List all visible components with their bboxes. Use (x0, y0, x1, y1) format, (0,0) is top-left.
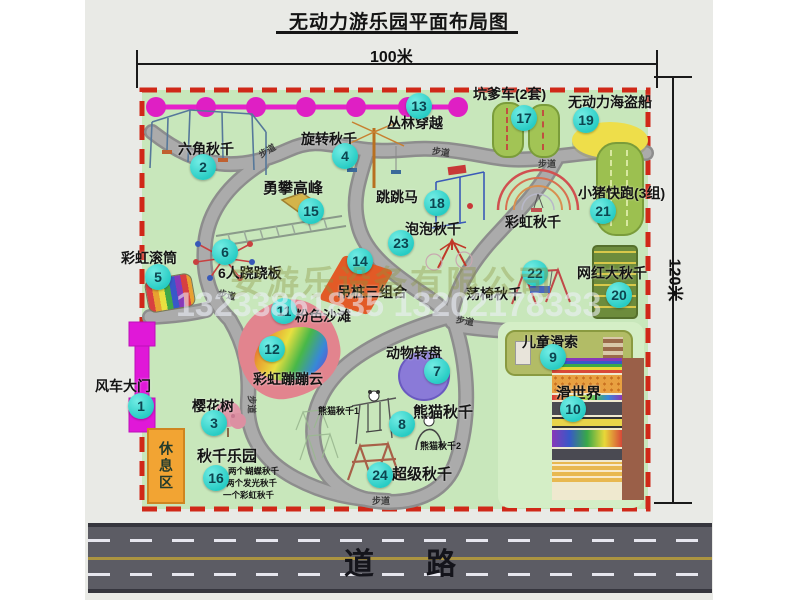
attraction-label-5: 彩虹滚筒 (121, 248, 177, 268)
attraction-badge-4: 4 (332, 143, 358, 169)
attraction-label-20: 网红大秋千 (577, 263, 647, 283)
attraction-badge-15: 15 (298, 198, 324, 224)
attraction-label-23: 泡泡秋千 (405, 219, 461, 239)
attraction-badge-9: 9 (540, 344, 566, 370)
attraction-badge-24: 24 (367, 462, 393, 488)
slide-world-tower (622, 358, 644, 500)
attraction-label-24: 超级秋千 (392, 463, 452, 484)
attraction-badge-8: 8 (389, 411, 415, 437)
attraction-label-8: 熊猫秋千 (413, 401, 473, 422)
swing-park-item-1: 两个蝴蝶秋千 (228, 465, 279, 477)
panda-swing-2-label: 熊猫秋千2 (420, 439, 461, 452)
park-layout-screenshot: 无动力游乐园平面布局图 100米 120米 (0, 0, 800, 600)
attraction-badge-23: 23 (388, 230, 414, 256)
swing-park-item-3: 一个彩虹秋千 (223, 489, 274, 501)
panda-swing-1-label: 熊猫秋千1 (318, 404, 359, 417)
attraction-label-15: 勇攀高峰 (263, 177, 323, 198)
dim-tick-right-top (654, 76, 692, 78)
dim-tick-right-bottom (654, 502, 692, 504)
attraction-badge-19: 19 (573, 107, 599, 133)
dim-label-width: 100米 (370, 43, 413, 67)
page-title: 无动力游乐园平面布局图 (283, 7, 515, 34)
attraction-badge-12: 12 (259, 336, 285, 362)
attraction-label-16: 秋千乐园 (197, 445, 257, 466)
attraction-badge-21: 21 (590, 198, 616, 224)
attraction-badge-20: 20 (606, 282, 632, 308)
dim-tick-top-right (656, 50, 658, 88)
dim-tick-top-left (136, 50, 138, 88)
road: 道路 (88, 523, 712, 593)
attraction-label-17: 坑爹车(2套) (473, 84, 546, 104)
attraction-badge-18: 18 (424, 190, 450, 216)
attraction-label-21: 小猪快跑(3组) (578, 183, 665, 203)
attraction-badge-5: 5 (145, 264, 171, 290)
attraction-badge-3: 3 (201, 410, 227, 436)
attraction-badge-17: 17 (511, 105, 537, 131)
walkway-label: 步道 (246, 395, 259, 413)
attraction-badge-2: 2 (190, 154, 216, 180)
walkway-label: 步道 (538, 157, 556, 170)
watermark-phone: 13233861835 13202178333 (176, 286, 601, 325)
road-label: 道路 (88, 539, 712, 583)
attraction-label-18: 跳跳马 (376, 187, 418, 207)
rest-area-label: 休息区 (156, 441, 176, 492)
attraction-badge-1: 1 (128, 393, 154, 419)
walkway-label: 步道 (372, 494, 390, 507)
title-underline (276, 31, 518, 34)
swing-park-item-2: 两个发光秋千 (226, 477, 277, 489)
attraction-badge-7: 7 (424, 358, 450, 384)
attraction-label-12: 彩虹蹦蹦云 (253, 369, 323, 389)
slide-world-shape (552, 358, 622, 500)
walkway-label: 步道 (431, 144, 451, 159)
dim-label-height: 120米 (664, 259, 688, 302)
attraction-badge-10: 10 (560, 396, 586, 422)
attraction-badge-13: 13 (406, 93, 432, 119)
rest-area: 休息区 (147, 428, 185, 504)
attraction-badge-16: 16 (203, 465, 229, 491)
rainbow-swing-label: 彩虹秋千 (505, 212, 561, 232)
